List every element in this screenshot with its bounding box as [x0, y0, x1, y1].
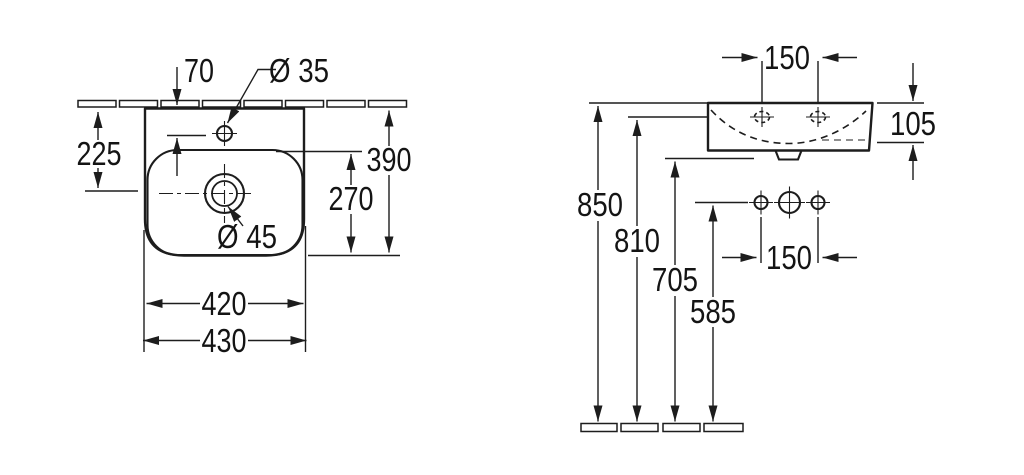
wall-hatch-segment — [120, 101, 158, 108]
front-view: 150 105 850 810 — [577, 39, 936, 432]
wall-hatch-segment — [369, 101, 407, 108]
wall-hatch-segment — [161, 101, 199, 108]
floor-hatch-segment — [704, 424, 743, 432]
wall-hatch-band — [78, 101, 407, 108]
drain-hole — [159, 164, 251, 223]
dim-label-850: 850 — [577, 186, 623, 223]
dim-label-105: 105 — [890, 105, 936, 142]
dim-wall-to-drain: 225 — [77, 112, 139, 191]
wall-hatch-segment — [327, 101, 365, 108]
dim-label-tap-diameter: Ø 35 — [269, 52, 329, 89]
dim-label-585: 585 — [690, 293, 736, 330]
dim-tap-spacing: 150 — [722, 39, 857, 104]
dim-tap-hole-setback: 70 — [167, 52, 214, 176]
plan-view: 70 Ø 35 225 390 270 — [77, 52, 412, 359]
dim-apron-height: 105 — [877, 63, 936, 180]
floor-hatch-band — [581, 424, 743, 432]
dim-label-150-top: 150 — [764, 39, 810, 76]
tap-holes-hidden — [750, 107, 830, 127]
washbasin-dimension-drawing: 70 Ø 35 225 390 270 — [0, 0, 1024, 475]
dim-fitting-height: 585 — [690, 206, 736, 422]
wall-fittings — [749, 187, 830, 219]
wall-hatch-segment — [203, 101, 241, 108]
dim-label-430: 430 — [202, 322, 247, 359]
dim-label-225: 225 — [77, 135, 122, 172]
dim-label-390: 390 — [367, 141, 412, 178]
dim-label-70: 70 — [184, 52, 214, 89]
floor-hatch-segment — [621, 424, 658, 432]
leader-tap-hole-diameter: Ø 35 — [228, 52, 330, 123]
floor-hatch-segment — [663, 424, 700, 432]
dim-label-420: 420 — [202, 285, 247, 322]
dim-label-drain-diameter: Ø 45 — [217, 218, 277, 255]
dim-fitting-spacing: 150 — [722, 217, 857, 276]
dim-rim-height: 850 — [577, 106, 623, 422]
wall-hatch-segment — [78, 101, 116, 108]
dim-label-150-bottom: 150 — [766, 239, 812, 276]
wall-hatch-segment — [286, 101, 324, 108]
dim-outlet-height: 705 — [652, 162, 698, 422]
wall-hatch-segment — [244, 101, 282, 108]
drain-stub-outline — [776, 151, 802, 160]
tap-hole — [212, 121, 237, 146]
dim-label-270: 270 — [329, 180, 374, 217]
technical-drawing-canvas: 70 Ø 35 225 390 270 — [0, 0, 1024, 475]
dim-label-810: 810 — [614, 222, 660, 259]
floor-hatch-segment — [581, 424, 617, 432]
bowl-hidden-contour — [711, 110, 866, 144]
